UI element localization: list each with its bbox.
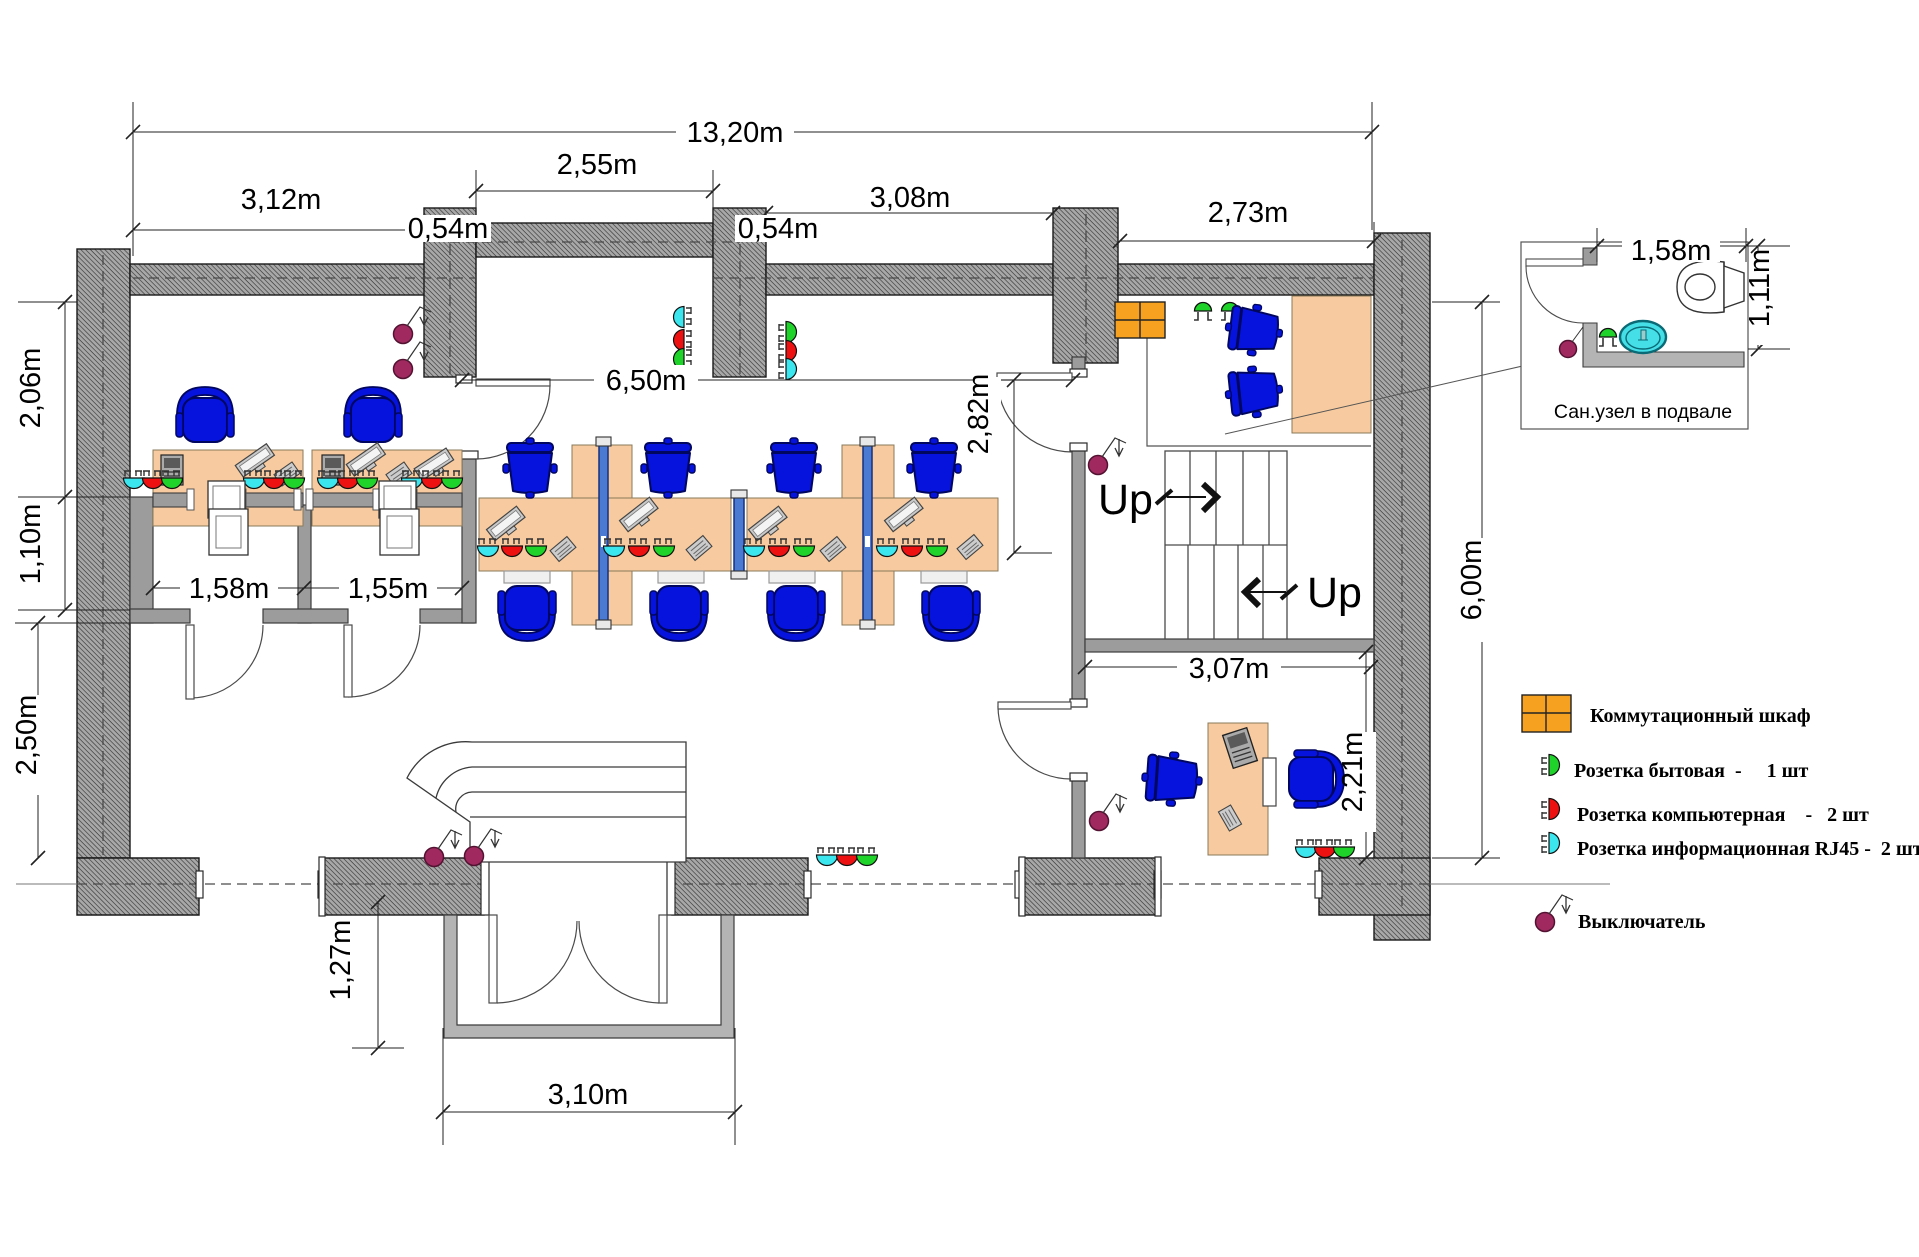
svg-text:0,54m: 0,54m (408, 213, 489, 245)
svg-text:Up: Up (1098, 476, 1153, 524)
svg-text:2,73m: 2,73m (1208, 197, 1289, 229)
svg-text:6,50m: 6,50m (606, 365, 687, 397)
svg-text:Коммутационный шкаф: Коммутационный шкаф (1590, 705, 1811, 727)
svg-text:0,54m: 0,54m (738, 213, 819, 245)
svg-text:2,21m: 2,21m (1337, 732, 1369, 813)
svg-text:1,11m: 1,11m (1744, 249, 1776, 327)
svg-text:Выключатель: Выключатель (1578, 911, 1706, 933)
svg-text:Розетка информационная RJ45 -: Розетка информационная RJ45 - 2 шт (1577, 838, 1919, 860)
svg-text:2,55m: 2,55m (557, 149, 638, 181)
svg-text:3,12m: 3,12m (241, 184, 322, 216)
svg-text:3,10m: 3,10m (548, 1079, 629, 1111)
svg-text:2,50m: 2,50m (11, 695, 43, 776)
svg-text:2,82m: 2,82m (963, 374, 995, 455)
svg-text:Розетка компьютерная - 2: Розетка компьютерная - 2 шт (1577, 804, 1869, 826)
svg-text:2,06m: 2,06m (15, 348, 47, 429)
svg-text:Up: Up (1307, 569, 1362, 617)
svg-text:13,20m: 13,20m (687, 117, 784, 149)
svg-text:Розетка бытовая - 1 шт: Розетка бытовая - 1 шт (1574, 760, 1809, 782)
svg-text:1,55m: 1,55m (348, 573, 429, 605)
svg-text:3,08m: 3,08m (870, 182, 951, 214)
svg-text:1,27m: 1,27m (325, 920, 357, 1001)
svg-text:1,58m: 1,58m (189, 573, 270, 605)
svg-text:Сан.узел в подвале: Сан.узел в подвале (1554, 401, 1732, 423)
svg-text:6,00m: 6,00m (1456, 540, 1488, 621)
svg-text:3,07m: 3,07m (1189, 653, 1270, 685)
svg-text:1,58m: 1,58m (1631, 235, 1712, 267)
svg-text:1,10m: 1,10m (15, 504, 47, 585)
